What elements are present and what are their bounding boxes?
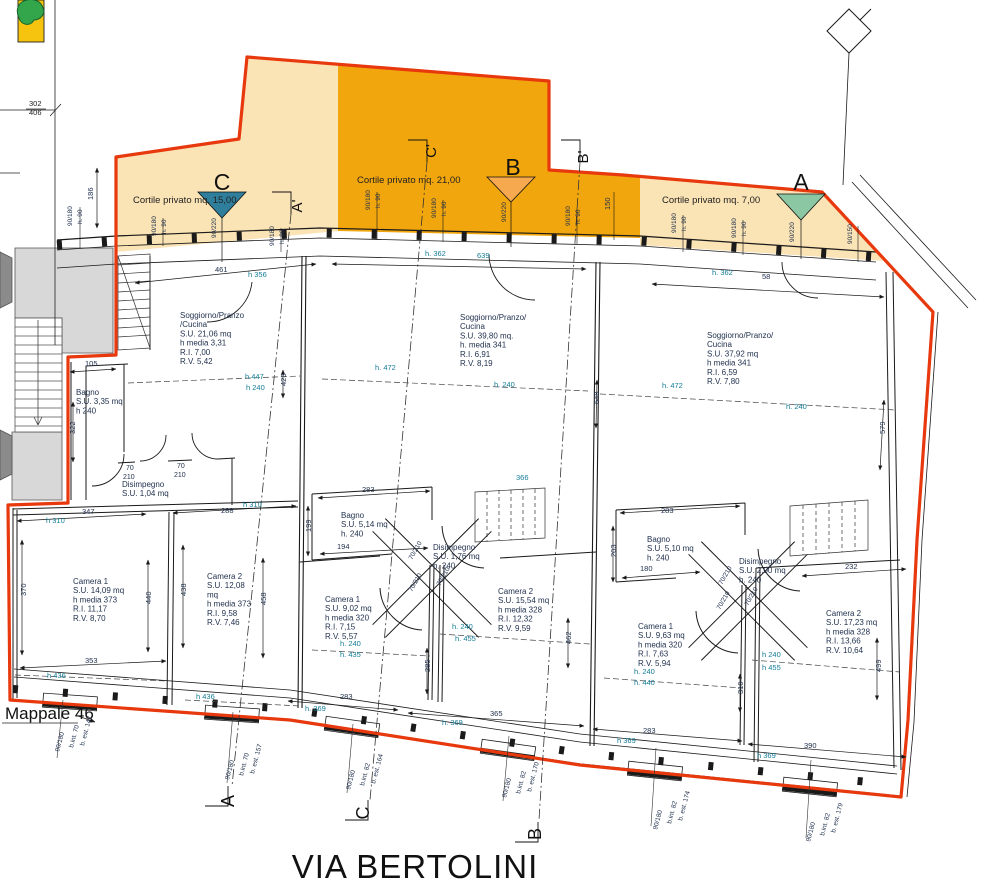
street-label: VIA BERTOLINI [292,848,539,885]
svg-text:h. 362: h. 362 [712,268,733,277]
courtyard-c-area [116,57,338,252]
svg-text:b. est. 179: b. est. 179 [830,802,845,834]
svg-text:288: 288 [221,506,234,515]
svg-text:423: 423 [279,373,288,386]
svg-text:h. 90: h. 90 [161,219,168,234]
mappale-label: Mappale 46 [5,704,94,723]
svg-text:70/210: 70/210 [408,572,424,593]
svg-text:b. est. 174: b. est. 174 [677,790,692,822]
svg-text:h. 362: h. 362 [425,249,446,258]
svg-text:h. 90: h. 90 [375,193,382,208]
svg-text:283: 283 [643,726,656,735]
svg-text:440: 440 [144,591,153,604]
svg-text:90/180: 90/180 [731,218,738,238]
svg-text:h. 435: h. 435 [340,650,361,659]
svg-text:C': C' [423,144,440,158]
svg-text:579: 579 [878,421,887,434]
svg-text:648: 648 [592,391,601,404]
svg-text:90/180: 90/180 [224,759,236,780]
svg-text:h 356: h 356 [248,270,267,279]
svg-text:h. 90: h. 90 [575,209,582,224]
svg-text:90/180: 90/180 [345,769,357,790]
soggiorno-unit-c-label: Soggiorno/Pranzo/CucinaS.U. 21,06 mqh me… [180,311,245,366]
floor-plan-svg: 302 406 Mappale 46 VIA BERTOLINI Cortile… [0,0,1005,889]
svg-text:210: 210 [174,472,186,479]
svg-text:h. 440: h. 440 [634,678,655,687]
svg-text:h. 369: h. 369 [305,704,326,713]
svg-text:461: 461 [215,265,228,274]
svg-text:353: 353 [85,656,98,665]
soggiorno-unit-a-label: Soggiorno/Pranzo/CucinaS.U. 37,92 mqh me… [707,331,774,386]
svg-text:58: 58 [762,272,770,281]
neighbor-stair-block [0,248,113,500]
camera1-unit-b-label: Camera 1S.U. 9,02 mqh media 320R.I. 7,15… [325,595,372,641]
courtyard-b-area [338,64,640,238]
svg-text:A': A' [289,199,306,212]
svg-text:365: 365 [490,709,503,718]
svg-text:232: 232 [845,562,858,571]
svg-text:90/180: 90/180 [67,206,74,226]
svg-text:Cortile privato mq. 7,00: Cortile privato mq. 7,00 [662,195,760,206]
svg-text:90/180: 90/180 [269,226,276,246]
svg-text:70: 70 [177,463,185,470]
svg-text:310: 310 [736,681,745,694]
svg-text:370: 370 [19,583,28,596]
svg-text:70/210: 70/210 [718,565,734,586]
bagno-unit-b-label: BagnoS.U. 5,14 mqh. 240 [341,511,388,538]
svg-text:C: C [214,169,231,195]
stair-hatch-unit-a [790,500,868,556]
svg-text:h 369: h 369 [757,751,776,760]
parcel-ref-bottom: 406 [29,108,42,117]
boundary-diamond-icon [827,9,871,185]
svg-text:h. 90: h. 90 [681,216,688,231]
svg-text:h 310: h 310 [243,500,262,509]
svg-text:h 455: h 455 [762,663,781,672]
svg-text:186: 186 [86,187,95,200]
window-leader-lines [57,700,811,838]
svg-text:390: 390 [804,741,817,750]
svg-text:639: 639 [477,251,490,260]
camera2-unit-a-label: Camera 2S.U. 17,23 mqh media 328R.I. 13,… [826,609,877,655]
svg-text:283: 283 [362,485,375,494]
svg-text:h. 90: h. 90 [279,229,286,244]
svg-text:h. 240: h. 240 [634,667,655,676]
svg-text:h. 240: h. 240 [452,622,473,631]
svg-text:105: 105 [85,359,98,368]
svg-text:458: 458 [259,592,268,605]
building-facade-bottom [12,669,899,796]
svg-text:438: 438 [179,583,188,596]
svg-text:h 436: h 436 [196,692,215,701]
floor-plan-canvas: 302 406 Mappale 46 VIA BERTOLINI Cortile… [0,0,1005,889]
svg-text:b. est. 170: b. est. 170 [526,761,541,793]
svg-text:283: 283 [661,506,674,515]
svg-text:90/180: 90/180 [671,213,678,233]
disimpegno-unit-c-label: DisimpegnoS.U. 1,04 mq [122,480,169,498]
disimpegno-x-unit-b [373,519,492,638]
svg-text:B': B' [575,150,592,163]
svg-text:90/180: 90/180 [431,198,438,218]
camera1-unit-a-label: Camera 1S.U. 9,63 mqh media 320R.I. 7,63… [638,622,685,668]
room-text-blocks: Soggiorno/Pranzo/CucinaS.U. 21,06 mqh me… [73,311,877,668]
svg-text:B: B [525,828,545,840]
neighbor-parcel-lines [852,175,976,797]
svg-text:90/220: 90/220 [789,222,796,242]
svg-text:90/180: 90/180 [365,190,372,210]
svg-text:347: 347 [82,507,95,516]
svg-text:h. 472: h. 472 [662,381,683,390]
svg-text:150: 150 [603,197,612,210]
soggiorno-unit-b-label: Soggiorno/Pranzo/CucinaS.U. 39,80 mq.h. … [460,313,527,368]
svg-text:499: 499 [874,659,883,672]
svg-text:90/220: 90/220 [211,218,218,238]
svg-text:Cortile privato mq. 21,00: Cortile privato mq. 21,00 [357,175,461,186]
svg-text:285: 285 [423,659,432,672]
svg-text:h 240: h 240 [246,383,265,392]
svg-text:b. est. 164: b. est. 164 [370,753,385,785]
svg-text:90/180: 90/180 [501,777,513,798]
svg-text:h. 240: h. 240 [494,380,515,389]
svg-text:90/180: 90/180 [652,809,664,830]
svg-text:199: 199 [304,519,313,532]
svg-text:h 240: h 240 [762,650,781,659]
svg-text:203: 203 [609,544,618,557]
svg-text:h. 455: h. 455 [455,634,476,643]
svg-text:h 436: h 436 [47,671,66,680]
svg-text:h 369: h 369 [617,736,636,745]
svg-text:322: 322 [68,421,77,434]
svg-text:h. 90: h. 90 [441,201,448,216]
svg-text:h. 240: h. 240 [786,402,807,411]
svg-text:b.int. 82: b.int. 82 [819,812,832,837]
svg-text:90/220: 90/220 [501,202,508,222]
svg-text:180: 180 [640,564,653,573]
window-thresholds [43,693,838,797]
svg-text:366: 366 [516,473,529,482]
svg-text:h 447: h 447 [245,372,264,381]
svg-text:283: 283 [340,692,353,701]
svg-text:A: A [793,169,809,195]
parcel-ref-top: 302 [29,99,42,108]
svg-text:70/210: 70/210 [716,590,732,611]
stair-hatch-unit-b [475,488,545,542]
svg-text:90/180: 90/180 [54,731,66,752]
stair-hatch-unit-c [118,254,150,350]
svg-text:90/180: 90/180 [565,206,572,226]
svg-text:h. 369: h. 369 [442,718,463,727]
svg-text:h. 90: h. 90 [77,209,84,224]
svg-text:h. 472: h. 472 [375,363,396,372]
bagno-unit-a-label: BagnoS.U. 5,10 mqh. 240 [647,535,694,562]
disimpegno-unit-a-label: DisimpegnoS.U. 2,00 mqh. 240 [739,557,786,584]
svg-text:C: C [353,807,373,820]
section-cut-lines [232,162,580,820]
svg-text:90/180: 90/180 [151,216,158,236]
camera2-unit-b-label: Camera 2S.U. 15,54 mqh media 328R.I. 12,… [498,587,549,633]
svg-text:h. 90: h. 90 [741,221,748,236]
svg-text:462: 462 [564,631,573,644]
svg-text:h 310: h 310 [46,516,65,525]
svg-text:Cortile privato mq. 15,00: Cortile privato mq. 15,00 [133,195,237,206]
svg-text:b. est. 157: b. est. 157 [249,743,264,775]
camera2-unit-c-label: Camera 2S.U. 12,08mqh media 373R.I. 9,58… [207,572,252,627]
camera1-unit-c-label: Camera 1S.U. 14,09 mqh media 373R.I. 11,… [73,577,124,623]
svg-text:A: A [218,795,238,807]
bagno-unit-c-label: BagnoS.U. 3,35 mqh 240 [76,388,123,415]
svg-text:70: 70 [126,465,134,472]
svg-text:90/150: 90/150 [847,224,854,244]
svg-text:194: 194 [337,542,350,551]
svg-text:B: B [505,154,520,180]
map-symbol [17,0,44,42]
svg-text:b.int. 82: b.int. 82 [666,800,679,825]
